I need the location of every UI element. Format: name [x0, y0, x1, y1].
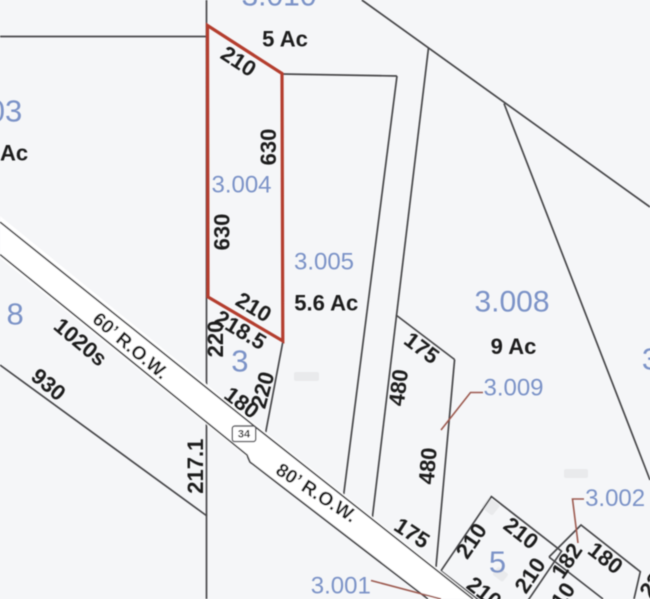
svg-text:3.004: 3.004: [211, 172, 271, 199]
svg-text:220: 220: [203, 321, 228, 358]
svg-text:34: 34: [238, 428, 251, 440]
svg-text:480: 480: [384, 368, 413, 407]
svg-text:3: 3: [231, 344, 248, 379]
svg-text:3.009: 3.009: [483, 375, 543, 402]
svg-text:3.001: 3.001: [311, 573, 371, 599]
svg-text:9 Ac: 9 Ac: [491, 334, 537, 359]
svg-text:5: 5: [489, 545, 506, 580]
svg-text:3: 3: [642, 342, 650, 377]
svg-text:480: 480: [414, 447, 442, 486]
svg-text:5 Ac: 5 Ac: [262, 27, 308, 52]
svg-text:5.6 Ac: 5.6 Ac: [294, 291, 358, 316]
svg-text:3.002: 3.002: [585, 485, 645, 512]
svg-text:03: 03: [0, 94, 22, 129]
svg-text:3.005: 3.005: [294, 249, 354, 276]
svg-text:217.1: 217.1: [183, 439, 208, 494]
svg-text:3.010: 3.010: [241, 0, 316, 13]
svg-text:Ac: Ac: [0, 141, 28, 166]
svg-text:630: 630: [256, 129, 281, 166]
svg-text:630: 630: [210, 214, 235, 251]
svg-text:3.008: 3.008: [474, 286, 549, 319]
svg-text:8: 8: [6, 296, 23, 331]
